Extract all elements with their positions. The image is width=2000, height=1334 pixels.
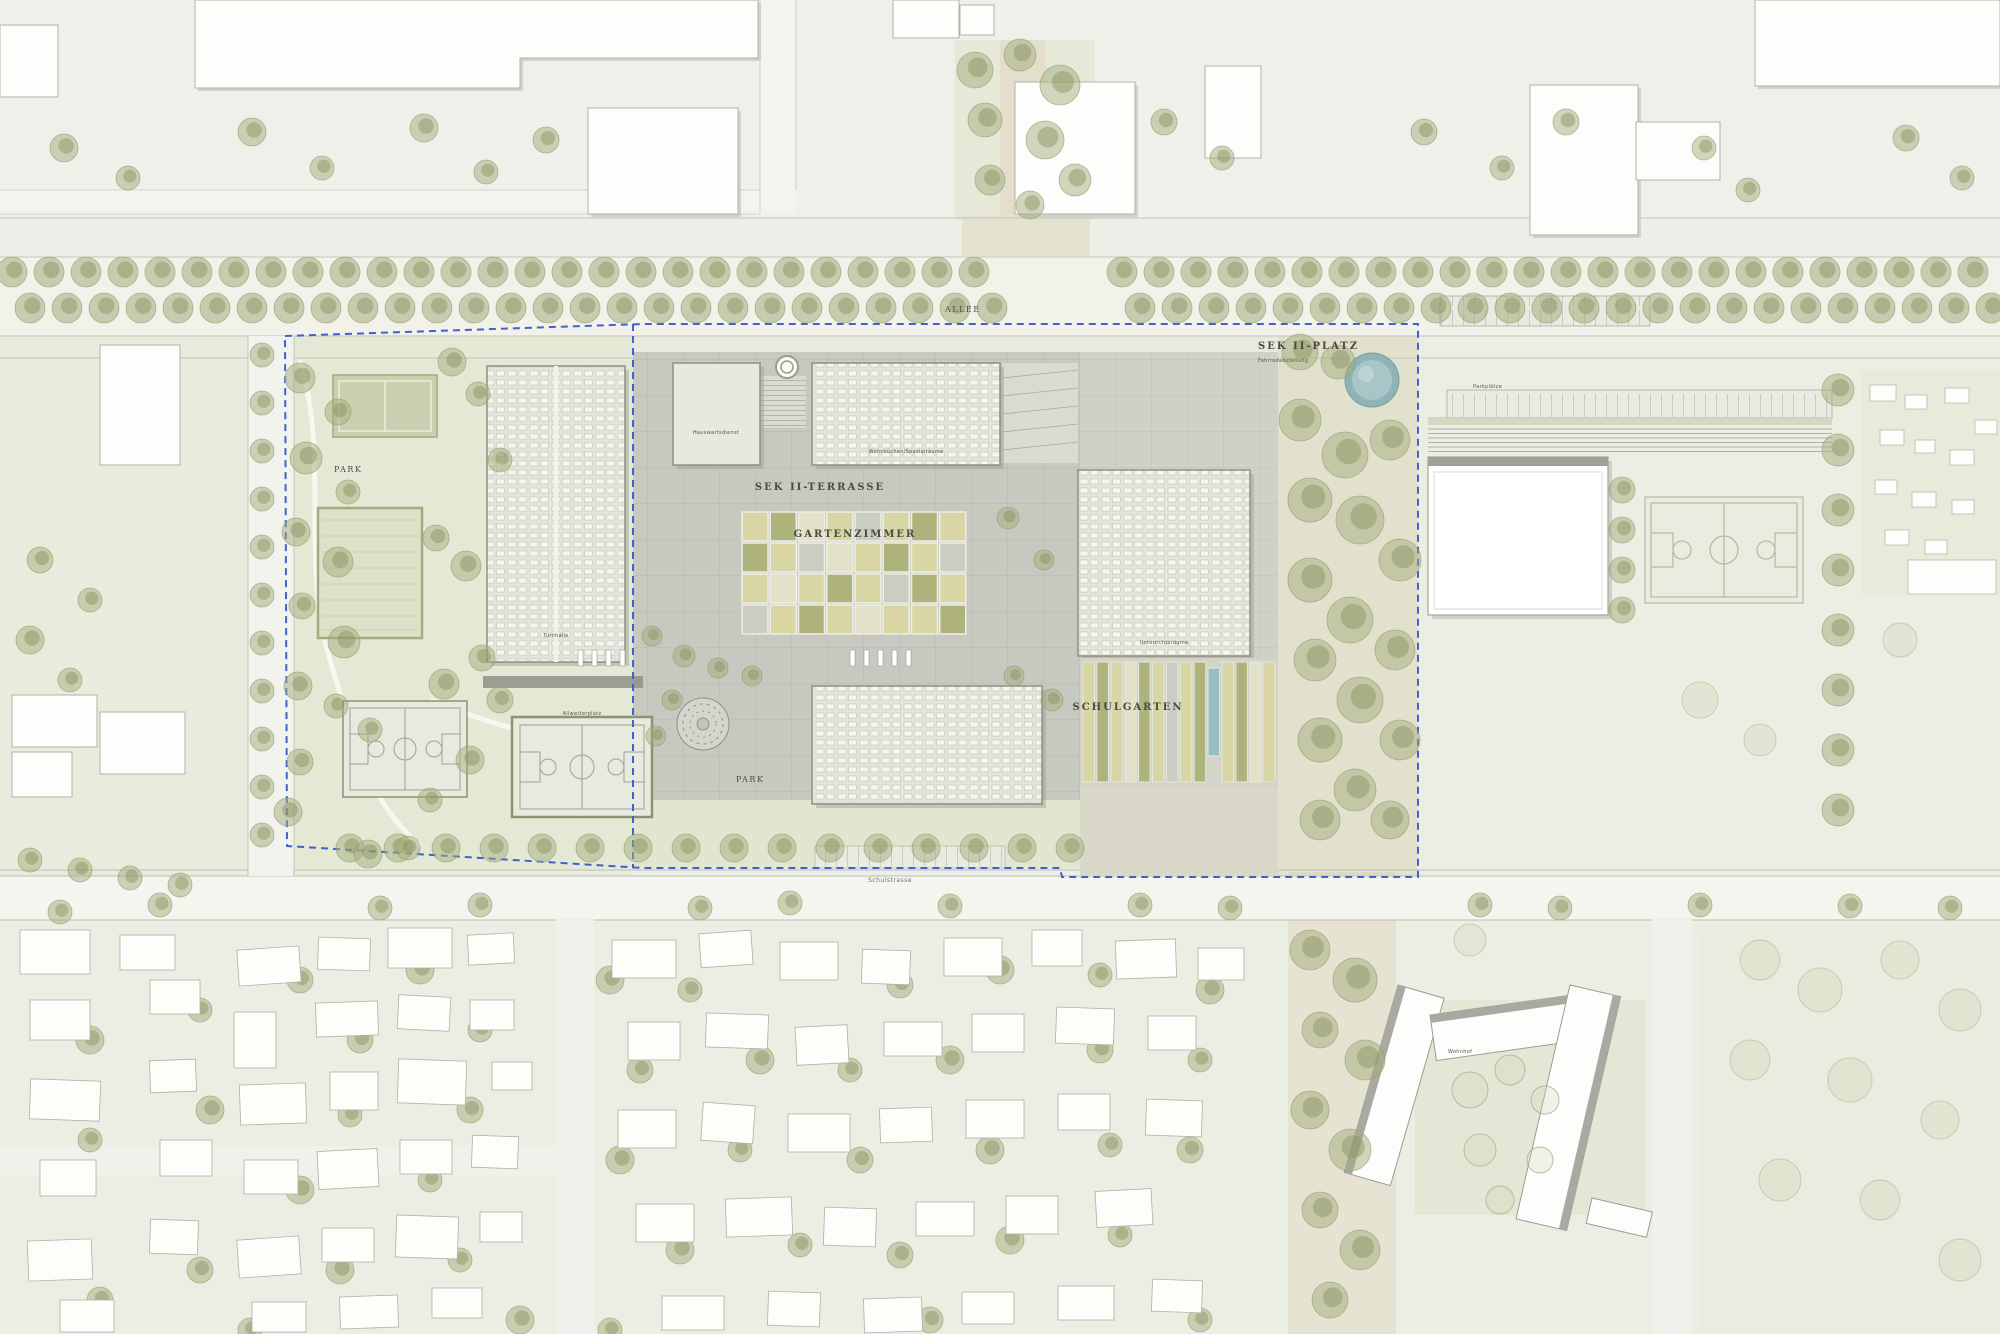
tree	[1921, 257, 1951, 287]
house	[395, 1215, 458, 1259]
tree	[274, 798, 302, 826]
house	[628, 1022, 680, 1060]
tree	[1606, 293, 1636, 323]
garden-tile	[912, 543, 938, 572]
tree	[336, 480, 360, 504]
tree	[285, 363, 315, 393]
schulgarten	[1080, 658, 1278, 786]
label-wohnhof: Wohnhof	[1448, 1049, 1472, 1055]
tree	[1302, 1012, 1338, 1048]
tree	[1334, 769, 1376, 811]
tree	[310, 156, 334, 180]
garden-strip	[1153, 662, 1165, 782]
tree	[1865, 293, 1895, 323]
house	[795, 1025, 849, 1066]
house	[725, 1197, 792, 1237]
tree	[968, 103, 1002, 137]
tree	[311, 293, 341, 323]
tree	[627, 1057, 653, 1083]
house	[480, 1212, 522, 1242]
tree	[1128, 893, 1152, 917]
tree	[16, 626, 44, 654]
parking-lot-east	[1447, 390, 1832, 418]
tree	[1008, 834, 1036, 862]
faint-tree	[1921, 1101, 1959, 1139]
garden-tile	[827, 605, 853, 634]
garden-strip	[1097, 662, 1109, 782]
tree	[1329, 1129, 1371, 1171]
house	[317, 1148, 379, 1189]
house	[29, 1079, 100, 1121]
house	[884, 1022, 942, 1056]
label-street-south: Schulstrasse	[868, 877, 912, 884]
faint-tree	[1828, 1058, 1872, 1102]
label-parking-east: Parkplätze	[1473, 384, 1502, 390]
label-gartenzimmer: GARTENZIMMER	[794, 529, 917, 540]
tree	[1340, 1230, 1380, 1270]
house	[244, 1160, 298, 1194]
garden-tile	[883, 543, 909, 572]
tree	[1548, 896, 1572, 920]
tree	[1810, 257, 1840, 287]
sports-hall-north-edge	[1428, 457, 1608, 466]
tree	[1059, 164, 1091, 196]
tree	[238, 118, 266, 146]
tree	[1004, 39, 1036, 71]
garden-tile	[770, 574, 796, 603]
tree	[48, 900, 72, 924]
faint-tree	[1740, 940, 1780, 980]
tree	[126, 293, 156, 323]
tree	[293, 257, 323, 287]
tree	[325, 399, 351, 425]
tree	[27, 547, 53, 573]
tree	[1791, 293, 1821, 323]
tree	[250, 679, 274, 703]
schulgarten-base	[1080, 658, 1278, 786]
garden-tile	[742, 574, 768, 603]
house	[1006, 1196, 1058, 1234]
garden-tile	[799, 605, 825, 634]
tree	[1440, 257, 1470, 287]
tree	[1680, 293, 1710, 323]
house	[467, 933, 515, 965]
house	[1058, 1094, 1110, 1130]
house	[1055, 1007, 1114, 1045]
garden-tile	[940, 543, 966, 572]
tree	[34, 257, 64, 287]
tree	[997, 507, 1019, 529]
tree	[148, 893, 172, 917]
tree	[673, 645, 695, 667]
tree	[441, 257, 471, 287]
tree	[468, 893, 492, 917]
tree	[1151, 109, 1177, 135]
existing-building	[893, 0, 959, 38]
house	[239, 1083, 306, 1125]
bike-rack	[606, 650, 611, 666]
tree	[1902, 293, 1932, 323]
faint-tree	[1883, 623, 1917, 657]
tree	[1421, 293, 1451, 323]
tree	[1662, 257, 1692, 287]
tree	[774, 257, 804, 287]
tree	[488, 448, 512, 472]
tree	[1736, 178, 1760, 202]
tree	[256, 257, 286, 287]
tree	[250, 631, 274, 655]
tree	[250, 727, 274, 751]
tree	[960, 834, 988, 862]
tree	[469, 645, 495, 671]
tree	[1609, 597, 1635, 623]
tree	[200, 293, 230, 323]
tree	[1199, 293, 1229, 323]
bike-rack	[906, 650, 911, 666]
tree	[284, 672, 312, 700]
tree	[108, 257, 138, 287]
house	[1151, 1279, 1202, 1313]
tree	[688, 896, 712, 920]
existing-building	[960, 5, 994, 35]
tree	[1950, 166, 1974, 190]
house	[339, 1295, 398, 1329]
tree	[78, 588, 102, 612]
tree	[755, 293, 785, 323]
tree	[118, 866, 142, 890]
label-sek2-platz: SEK II-PLATZ	[1258, 341, 1359, 352]
tree	[145, 257, 175, 287]
tree	[1477, 257, 1507, 287]
water-basin-strip	[1208, 668, 1220, 756]
tree	[1088, 963, 1112, 987]
tree	[533, 127, 559, 153]
garden-tile	[742, 543, 768, 572]
site-plan-canvas: ALLEE PARK PARK SEK II-TERRASSE GARTENZI…	[0, 0, 2000, 1334]
house	[863, 1297, 922, 1333]
house	[962, 1292, 1014, 1324]
garden-tile	[799, 543, 825, 572]
tree	[1236, 293, 1266, 323]
tree	[50, 134, 78, 162]
tree	[720, 834, 748, 862]
tree	[1004, 666, 1024, 686]
campus-south-paving	[1080, 785, 1278, 877]
tree	[1371, 801, 1409, 839]
tree	[474, 160, 498, 184]
garden-tile	[770, 543, 796, 572]
garden-tile	[912, 605, 938, 634]
basketball-court-east	[1645, 497, 1803, 603]
faint-tree	[1798, 968, 1842, 1012]
house	[40, 1160, 96, 1196]
house	[944, 938, 1002, 976]
site-plan: ALLEE PARK PARK SEK II-TERRASSE GARTENZI…	[0, 0, 2000, 1334]
bike-rack	[892, 650, 897, 666]
tree	[1016, 191, 1044, 219]
house	[1198, 948, 1244, 980]
basketball-court-1	[343, 701, 467, 797]
tree	[1041, 689, 1063, 711]
tree	[423, 525, 449, 551]
bike-rack	[850, 650, 855, 666]
tree	[533, 293, 563, 323]
house	[788, 1114, 850, 1152]
house	[400, 1140, 452, 1174]
garden-strip	[1166, 662, 1178, 782]
house	[492, 1062, 532, 1090]
tree	[1838, 894, 1862, 918]
street-north	[760, 0, 796, 214]
house	[470, 1000, 514, 1030]
garden-strip	[1139, 662, 1151, 782]
tree	[487, 687, 513, 713]
garden-tile	[940, 512, 966, 541]
label-sek2-terrasse: SEK II-TERRASSE	[755, 482, 885, 493]
tree	[459, 293, 489, 323]
tree	[52, 293, 82, 323]
existing-building	[588, 108, 738, 214]
bike-rack	[578, 650, 583, 666]
tree	[1884, 257, 1914, 287]
tree	[1553, 109, 1579, 135]
tree	[1347, 293, 1377, 323]
tree	[250, 583, 274, 607]
tree	[18, 848, 42, 872]
tree	[478, 257, 508, 287]
bike-rack	[620, 650, 625, 666]
tree	[792, 293, 822, 323]
label-schulgarten: SCHULGARTEN	[1072, 702, 1183, 713]
tree	[976, 1136, 1004, 1164]
garden-tile	[883, 605, 909, 634]
tree	[885, 257, 915, 287]
tree	[1288, 478, 1332, 522]
house	[780, 942, 838, 980]
garden-tile	[742, 605, 768, 634]
tree	[1699, 257, 1729, 287]
tree	[330, 257, 360, 287]
tree	[89, 293, 119, 323]
tree	[788, 1233, 812, 1257]
label-sek2-platz-sub: Fahrradabstellung	[1258, 358, 1308, 364]
label-park-south: PARK	[736, 775, 764, 784]
house	[397, 1059, 466, 1105]
house	[966, 1100, 1024, 1138]
tree	[912, 834, 940, 862]
garden-tile	[827, 574, 853, 603]
tree	[1125, 293, 1155, 323]
tree	[1569, 293, 1599, 323]
hedge-strip	[1428, 417, 1832, 425]
tree	[1336, 496, 1384, 544]
tree	[274, 293, 304, 323]
house	[234, 1012, 276, 1068]
tree	[866, 293, 896, 323]
tree	[250, 535, 274, 559]
house	[315, 1001, 378, 1037]
tree	[1298, 718, 1342, 762]
garden-tile	[855, 543, 881, 572]
house	[1032, 930, 1082, 966]
tree	[348, 293, 378, 323]
tree	[1177, 1137, 1203, 1163]
tree	[1181, 257, 1211, 287]
tree	[466, 382, 490, 406]
tree	[552, 257, 582, 287]
tree	[1773, 257, 1803, 287]
tree	[959, 257, 989, 287]
tree	[957, 52, 993, 88]
tree	[1366, 257, 1396, 287]
garden-strip	[1194, 662, 1206, 782]
tree	[1282, 334, 1318, 370]
existing-building	[0, 25, 58, 97]
tree	[323, 547, 353, 577]
tree	[1514, 257, 1544, 287]
street-south-3	[1652, 918, 1692, 1334]
house	[60, 1300, 114, 1332]
tree	[0, 257, 27, 287]
tree	[938, 894, 962, 918]
tree	[1292, 257, 1322, 287]
tree	[1310, 293, 1340, 323]
house	[705, 1013, 768, 1049]
tree	[1379, 539, 1421, 581]
tree	[847, 1147, 873, 1173]
tree	[887, 1242, 913, 1268]
tree	[1056, 834, 1084, 862]
tree	[451, 551, 481, 581]
tree	[367, 257, 397, 287]
existing-building	[12, 752, 72, 797]
tree	[977, 293, 1007, 323]
existing-building	[100, 712, 185, 774]
tree	[1847, 257, 1877, 287]
tree	[1822, 734, 1854, 766]
tree	[589, 257, 619, 287]
tree	[570, 293, 600, 323]
tree	[219, 257, 249, 287]
existing-building	[1755, 0, 2000, 86]
existing-building	[1530, 85, 1638, 235]
tree	[1333, 958, 1377, 1002]
garden-tile	[855, 574, 881, 603]
tree	[1736, 257, 1766, 287]
house	[879, 1107, 932, 1143]
garden-tile	[799, 574, 825, 603]
label-hauswart: Hauswartsdienst	[693, 430, 739, 436]
garden-strip	[1180, 662, 1192, 782]
bike-rack	[864, 650, 869, 666]
tree	[168, 873, 192, 897]
tree	[1162, 293, 1192, 323]
tree	[624, 834, 652, 862]
house	[388, 928, 452, 968]
tree	[187, 1257, 213, 1283]
garden-tile	[855, 605, 881, 634]
faint-tree	[1730, 1040, 1770, 1080]
tree	[1893, 125, 1919, 151]
existing-building	[1205, 66, 1261, 158]
tree	[1329, 257, 1359, 287]
house	[150, 980, 200, 1014]
tree	[1625, 257, 1655, 287]
tree	[368, 896, 392, 920]
house	[823, 1207, 876, 1247]
building-unterricht	[1078, 470, 1250, 656]
tree	[737, 257, 767, 287]
tree	[250, 439, 274, 463]
tree	[515, 257, 545, 287]
tree	[1288, 558, 1332, 602]
tree	[1322, 432, 1368, 478]
tree	[1098, 1133, 1122, 1157]
house	[618, 1110, 676, 1148]
tree	[250, 823, 274, 847]
tree	[1291, 1091, 1329, 1129]
garden-tile	[770, 605, 796, 634]
house	[149, 1059, 196, 1093]
tree	[1218, 896, 1242, 920]
tree	[456, 746, 484, 774]
garden-strip	[1083, 662, 1095, 782]
tree	[1312, 1282, 1348, 1318]
tree	[418, 788, 442, 812]
tree	[1218, 257, 1248, 287]
house	[972, 1014, 1024, 1052]
tree	[746, 1046, 774, 1074]
faint-tree	[1744, 724, 1776, 756]
faint-tree	[1860, 1180, 1900, 1220]
tree	[1403, 257, 1433, 287]
house	[699, 930, 753, 968]
tree	[903, 293, 933, 323]
label-turnhalle: Turnhalle	[542, 633, 568, 639]
tree	[1188, 1048, 1212, 1072]
house	[30, 1000, 90, 1040]
tree	[778, 891, 802, 915]
house	[432, 1288, 482, 1318]
tree	[1717, 293, 1747, 323]
house	[1115, 939, 1176, 979]
tree	[528, 834, 556, 862]
house	[397, 995, 451, 1032]
tree	[58, 668, 82, 692]
house	[1145, 1099, 1202, 1137]
garden-tile	[883, 574, 909, 603]
label-unterricht: Unterrichtsräume	[1140, 640, 1189, 646]
house	[1095, 1189, 1153, 1228]
tree	[15, 293, 45, 323]
tree	[1822, 554, 1854, 586]
tree	[1290, 930, 1330, 970]
tree	[644, 293, 674, 323]
existing-building	[100, 345, 180, 465]
house	[861, 949, 910, 985]
house	[1058, 1286, 1114, 1320]
tree	[1034, 550, 1054, 570]
garden-tile	[742, 512, 768, 541]
house	[701, 1102, 756, 1144]
tree	[681, 293, 711, 323]
house	[330, 1072, 378, 1110]
tree	[1279, 399, 1321, 441]
tree	[1754, 293, 1784, 323]
tree	[1609, 557, 1635, 583]
tree	[864, 834, 892, 862]
tree	[250, 487, 274, 511]
